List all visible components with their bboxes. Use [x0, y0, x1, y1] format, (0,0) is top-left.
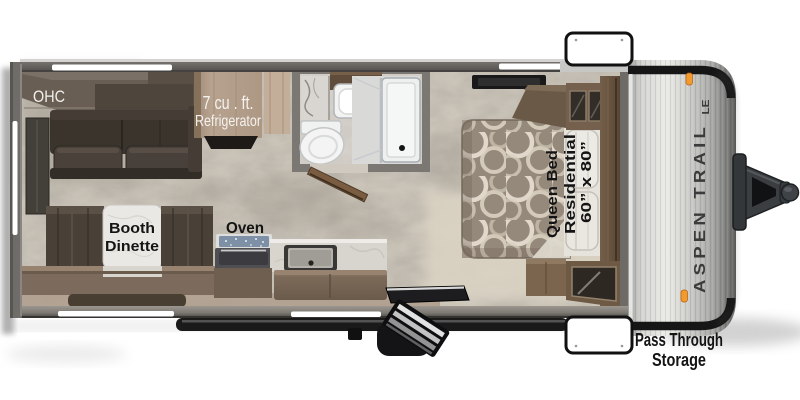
svg-text:7 cu . ft.: 7 cu . ft.	[203, 93, 254, 113]
svg-text:Dinette: Dinette	[105, 238, 159, 255]
svg-text:Booth: Booth	[109, 220, 155, 237]
svg-text:Refrigerator: Refrigerator	[195, 113, 262, 130]
svg-text:60” x 80”: 60” x 80”	[578, 141, 595, 223]
svg-text:LE: LE	[701, 99, 712, 114]
svg-text:OHC: OHC	[33, 87, 65, 106]
svg-text:Queen Bed: Queen Bed	[544, 150, 561, 238]
svg-text:Residential: Residential	[562, 134, 579, 234]
svg-text:ASPEN TRAIL: ASPEN TRAIL	[692, 123, 709, 293]
svg-text:Storage: Storage	[652, 350, 706, 370]
svg-text:Pass Through: Pass Through	[635, 330, 723, 350]
